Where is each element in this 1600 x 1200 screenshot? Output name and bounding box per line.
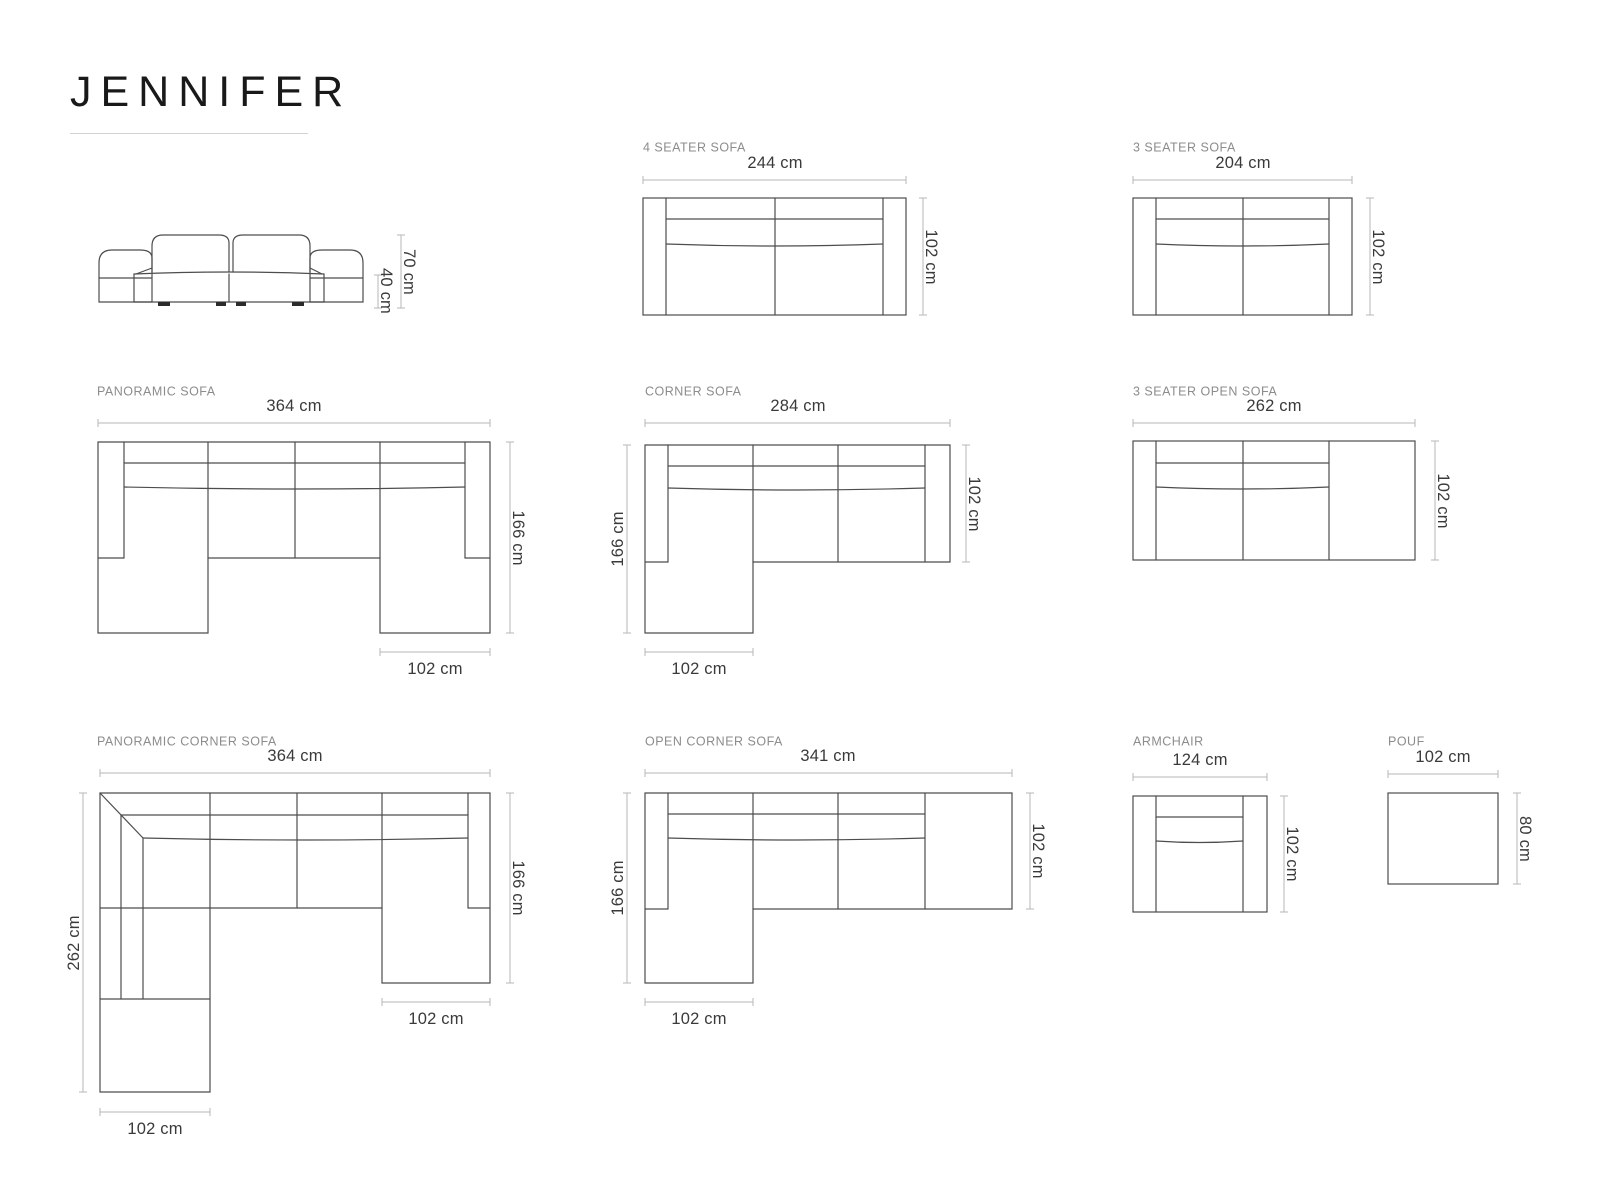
- sofa-outline: [1133, 441, 1415, 560]
- sofa-top-view: [1133, 198, 1352, 315]
- total-depth-dimension: 166 cm: [609, 445, 631, 633]
- three-seater-open-diagram: 3 SEATER OPEN SOFA 262 cm 102 cm: [1133, 384, 1452, 560]
- section-label: 3 SEATER SOFA: [1133, 140, 1236, 154]
- panoramic-sofa-diagram: PANORAMIC SOFA 364 cm: [97, 384, 527, 677]
- seat-depth-label: 102 cm: [1029, 823, 1047, 878]
- right-chaise-dimension: 102 cm: [382, 998, 490, 1028]
- sofa-outline: [645, 793, 1012, 983]
- width-label: 244 cm: [747, 154, 802, 172]
- back-cushion-right: [233, 235, 310, 272]
- chaise-width-label: 102 cm: [671, 660, 726, 678]
- total-height-dimension: 70 cm: [397, 235, 418, 308]
- right-chaise-label: 102 cm: [408, 1010, 463, 1028]
- sofa-front-sketch: [99, 235, 363, 306]
- section-label: ARMCHAIR: [1133, 734, 1204, 748]
- foot: [216, 302, 226, 306]
- depth-dimension: 102 cm: [1431, 441, 1452, 560]
- total-depth-label: 166 cm: [609, 860, 627, 915]
- left-chaise-label: 102 cm: [127, 1120, 182, 1138]
- chaise-width-label: 102 cm: [671, 1010, 726, 1028]
- width-dimension: 124 cm: [1133, 751, 1267, 781]
- seat-front-line: [668, 838, 925, 840]
- dimension-sheet: JENNIFER: [0, 0, 1600, 1200]
- width-dimension: 284 cm: [645, 397, 950, 427]
- seat-height-label: 40 cm: [377, 268, 395, 314]
- front-elevation-diagram: 70 cm 40 cm: [99, 235, 418, 314]
- sofa-outline: [98, 442, 490, 633]
- chaise-width-dimension: 102 cm: [645, 998, 753, 1028]
- depth-label: 80 cm: [1516, 816, 1534, 862]
- width-dimension: 262 cm: [1133, 397, 1415, 427]
- right-armrest: [310, 250, 363, 302]
- armchair-diagram: ARMCHAIR 124 cm 102 cm: [1133, 734, 1301, 912]
- seat-front-line: [668, 488, 925, 490]
- sofa-top-view: [645, 445, 950, 633]
- width-label: 262 cm: [1246, 397, 1301, 415]
- depth-label: 102 cm: [1283, 826, 1301, 881]
- section-label: OPEN CORNER SOFA: [645, 734, 783, 748]
- diagram-canvas: 70 cm 40 cm 4 SEATER SOFA 244 cm: [0, 0, 1600, 1200]
- panoramic-corner-diagram: PANORAMIC CORNER SOFA 364 cm: [65, 734, 527, 1137]
- sofa-top-view: [1133, 441, 1415, 560]
- seat-depth-dimension: 102 cm: [962, 445, 983, 562]
- sofa-outline: [645, 445, 950, 633]
- total-depth-label: 262 cm: [65, 915, 83, 970]
- chaise-width-dimension: 102 cm: [645, 648, 753, 678]
- foot: [292, 302, 304, 306]
- armchair-top-view: [1133, 796, 1267, 912]
- section-label: 4 SEATER SOFA: [643, 140, 746, 154]
- depth-dimension: 102 cm: [919, 198, 940, 315]
- foot: [236, 302, 246, 306]
- total-depth-dimension: 166 cm: [609, 793, 631, 983]
- back-cushion-left: [152, 235, 229, 272]
- depth-label: 102 cm: [1434, 473, 1452, 528]
- left-chaise-dimension: 102 cm: [100, 1108, 210, 1138]
- width-dimension: 102 cm: [1388, 748, 1498, 778]
- pouf-diagram: POUF 102 cm 80 cm: [1388, 734, 1534, 884]
- depth-dimension: 166 cm: [506, 442, 527, 633]
- armchair-outline: [1133, 796, 1267, 912]
- width-label: 364 cm: [267, 747, 322, 765]
- sofa-top-view: [100, 793, 490, 1092]
- depth-dimension: 102 cm: [1366, 198, 1387, 315]
- chaise-width-label: 102 cm: [407, 660, 462, 678]
- width-label: 341 cm: [800, 747, 855, 765]
- width-dimension: 204 cm: [1133, 154, 1352, 184]
- section-label: CORNER SOFA: [645, 384, 742, 398]
- width-dimension: 244 cm: [643, 154, 906, 184]
- seat-depth-label: 102 cm: [965, 476, 983, 531]
- seat-front-line: [143, 838, 468, 840]
- chaise-width-dimension: 102 cm: [380, 648, 490, 678]
- pouf-top-view: [1388, 793, 1498, 884]
- foot: [158, 302, 170, 306]
- width-dimension: 364 cm: [100, 747, 490, 777]
- four-seater-diagram: 4 SEATER SOFA 244 cm 102 cm: [643, 140, 940, 315]
- three-seater-diagram: 3 SEATER SOFA 204 cm 102 cm: [1133, 140, 1387, 315]
- open-corner-diagram: OPEN CORNER SOFA 341 cm: [609, 734, 1047, 1027]
- seat-front-line: [1156, 841, 1243, 843]
- width-label: 364 cm: [266, 397, 321, 415]
- depth-label: 102 cm: [1369, 229, 1387, 284]
- section-label: PANORAMIC CORNER SOFA: [97, 734, 277, 748]
- width-dimension: 364 cm: [98, 397, 490, 427]
- depth-dimension: 102 cm: [1280, 796, 1301, 912]
- depth-label: 102 cm: [922, 229, 940, 284]
- width-label: 124 cm: [1172, 751, 1227, 769]
- width-dimension: 341 cm: [645, 747, 1012, 777]
- right-depth-label: 166 cm: [509, 860, 527, 915]
- total-depth-label: 166 cm: [609, 511, 627, 566]
- seat-depth-dimension: 102 cm: [1026, 793, 1047, 909]
- width-label: 284 cm: [770, 397, 825, 415]
- section-label: PANORAMIC SOFA: [97, 384, 216, 398]
- width-label: 102 cm: [1415, 748, 1470, 766]
- right-depth-dimension: 166 cm: [506, 793, 527, 983]
- seat-height-dimension: 40 cm: [374, 268, 395, 314]
- pouf-outline: [1388, 793, 1498, 884]
- sofa-top-view: [643, 198, 906, 315]
- sofa-top-view: [645, 793, 1012, 983]
- corner-sofa-diagram: CORNER SOFA 284 cm 166: [609, 384, 983, 677]
- left-armrest: [99, 250, 152, 302]
- depth-label: 166 cm: [509, 510, 527, 565]
- sofa-top-view: [98, 442, 490, 633]
- section-label: POUF: [1388, 734, 1425, 748]
- total-depth-dimension: 262 cm: [65, 793, 87, 1092]
- depth-dimension: 80 cm: [1513, 793, 1534, 884]
- total-height-label: 70 cm: [400, 249, 418, 295]
- width-label: 204 cm: [1215, 154, 1270, 172]
